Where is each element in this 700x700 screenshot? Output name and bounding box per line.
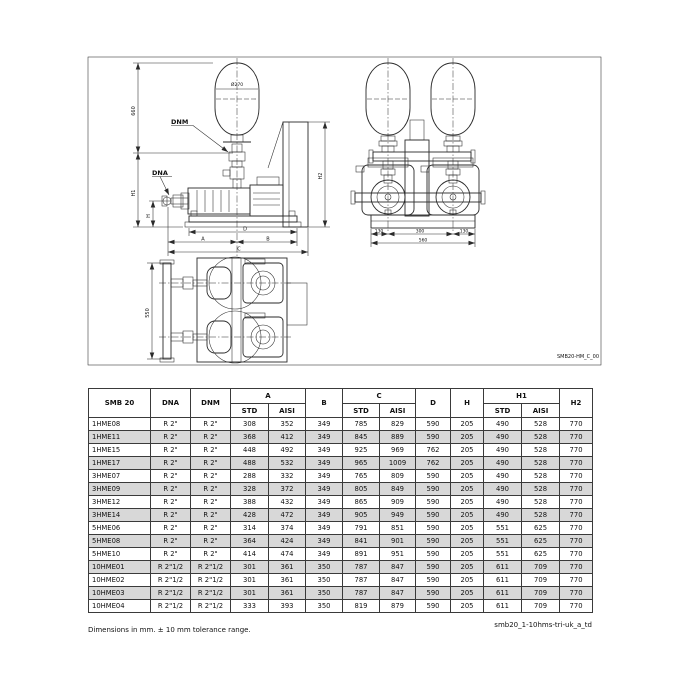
- delivery-manifold: [373, 152, 471, 161]
- technical-drawing: Ø270 DNM: [85, 25, 615, 373]
- subheader-a-std: STD: [231, 404, 269, 418]
- table-row: 3HME12R 2"R 2"38843234986590959020549052…: [89, 496, 593, 509]
- col-header-h2: H2: [560, 389, 593, 418]
- subheader-h1-aisi: AISI: [522, 404, 560, 418]
- table-row: 10HME01R 2"1/2R 2"1/23013613507878475902…: [89, 561, 593, 574]
- col-header-dna: DNA: [151, 389, 191, 418]
- col-header-a: A: [231, 389, 306, 404]
- dna-label: DNA: [152, 169, 168, 177]
- drawing-code: SMB20-HM_C_00: [557, 354, 599, 360]
- dim-300-label: 300: [416, 229, 425, 235]
- table-row: 5HME06R 2"R 2"31437434979185159020555162…: [89, 522, 593, 535]
- subheader-a-aisi: AISI: [269, 404, 306, 418]
- motor: [250, 185, 283, 216]
- subheader-c-aisi: AISI: [380, 404, 416, 418]
- table-row: 5HME08R 2"R 2"36442434984190159020555162…: [89, 535, 593, 548]
- side-view: Ø270 DNM: [131, 58, 330, 257]
- dim-h2-label: H2: [318, 173, 324, 180]
- table-row: 3HME07R 2"R 2"28833234976580959020549052…: [89, 470, 593, 483]
- dimensions-table-wrap: SMB 20 DNA DNM A B C D H H1 H2 STD AISI …: [88, 388, 592, 613]
- col-header-d: D: [416, 389, 451, 418]
- dim-130-left-label: 130: [375, 229, 384, 235]
- col-header-dnm: DNM: [191, 389, 231, 418]
- drawing-frame: [88, 57, 601, 365]
- plan-view: 550: [145, 257, 307, 363]
- plan-suction-manifold: [163, 263, 171, 359]
- subheader-c-std: STD: [343, 404, 380, 418]
- table-row: 1HME15R 2"R 2"44849234992596976220549052…: [89, 444, 593, 457]
- suction-manifold: [355, 193, 481, 202]
- pump-casing: [188, 188, 250, 214]
- dim-h-label: H: [146, 214, 152, 218]
- base-plate: [189, 216, 297, 222]
- table-row: 10HME02R 2"1/2R 2"1/23013613507878475902…: [89, 574, 593, 587]
- col-header-h: H: [451, 389, 484, 418]
- col-header-h1: H1: [484, 389, 560, 404]
- dim-b-label: B: [266, 237, 270, 243]
- table-row: 3HME09R 2"R 2"32837234980584959020549052…: [89, 483, 593, 496]
- dim-c-label: C: [237, 247, 241, 253]
- table-row: 1HME11R 2"R 2"36841234984588959020549052…: [89, 431, 593, 444]
- dim-d-label: D: [243, 227, 247, 233]
- table-row: 10HME04R 2"1/2R 2"1/23333933508198795902…: [89, 600, 593, 613]
- dim-130-right-label: 130: [460, 229, 469, 235]
- tank-diameter-label: Ø270: [231, 81, 243, 88]
- col-header-model: SMB 20: [89, 389, 151, 418]
- document-reference: smb20_1-10hms-tri-uk_a_td: [88, 621, 592, 629]
- base-front: [371, 215, 475, 228]
- dim-560-label: 560: [419, 238, 428, 244]
- col-header-c: C: [343, 389, 416, 404]
- table-row: 3HME14R 2"R 2"42847234990594959020549052…: [89, 509, 593, 522]
- dnm-label: DNM: [171, 118, 188, 126]
- dim-h1-label: H1: [131, 190, 137, 197]
- table-row: 1HME08R 2"R 2"30835234978582959020549052…: [89, 418, 593, 431]
- dimensions-table: SMB 20 DNA DNM A B C D H H1 H2 STD AISI …: [88, 388, 593, 613]
- table-row: 5HME10R 2"R 2"41447434989195159020555162…: [89, 548, 593, 561]
- dim-550-label: 550: [145, 308, 151, 318]
- control-panel: [283, 122, 308, 227]
- front-view: 130 300 130 560: [351, 58, 485, 247]
- subheader-h1-std: STD: [484, 404, 522, 418]
- table-row: 10HME03R 2"1/2R 2"1/23013613507878475902…: [89, 587, 593, 600]
- dim-a-label: A: [201, 237, 205, 243]
- col-header-b: B: [306, 389, 343, 418]
- datasheet-page: Ø270 DNM: [0, 0, 700, 700]
- table-row: 1HME17R 2"R 2"48853234996510097622054905…: [89, 457, 593, 470]
- dim-660-label: 660: [131, 106, 137, 116]
- support-column: [405, 140, 429, 216]
